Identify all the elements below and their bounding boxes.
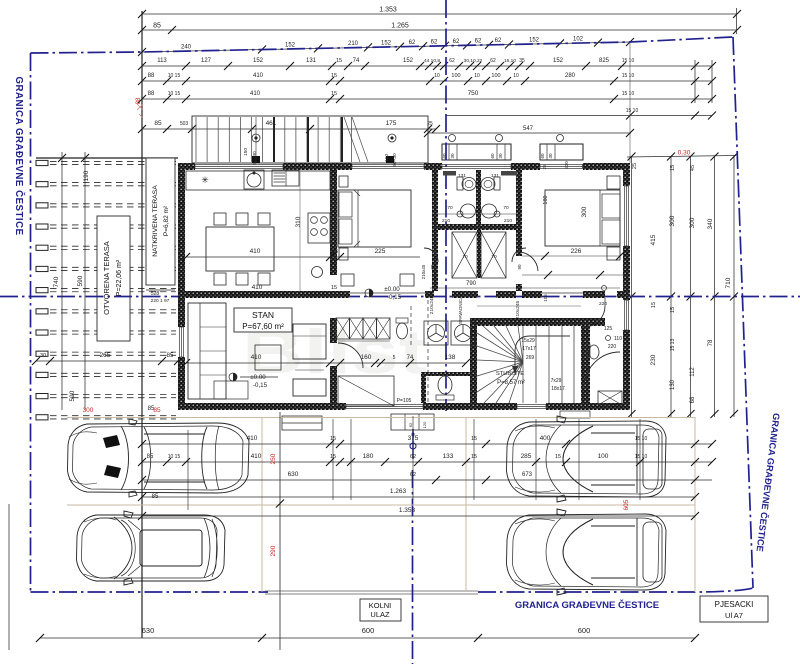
svg-text:62: 62 (409, 40, 416, 46)
svg-text:825: 825 (599, 58, 610, 64)
svg-text:152: 152 (253, 58, 264, 64)
svg-text:16,10: 16,10 (504, 58, 516, 64)
svg-text:0.30: 0.30 (678, 150, 691, 157)
svg-text:-0,15: -0,15 (387, 294, 402, 301)
svg-text:15 10: 15 10 (622, 91, 635, 97)
svg-text:30: 30 (450, 153, 455, 159)
svg-text:410: 410 (252, 284, 263, 291)
svg-text:410: 410 (250, 248, 261, 255)
svg-text:133: 133 (443, 453, 454, 460)
svg-text:600: 600 (362, 626, 375, 635)
svg-text:160: 160 (361, 354, 372, 361)
svg-text:15: 15 (330, 454, 336, 460)
svg-text:15: 15 (555, 454, 561, 460)
svg-text:100: 100 (491, 73, 500, 79)
svg-text:60: 60 (540, 153, 545, 159)
svg-text:62: 62 (475, 39, 482, 45)
svg-text:15 13: 15 13 (670, 339, 676, 352)
svg-text:P=22,06 m²: P=22,06 m² (116, 259, 123, 296)
svg-text:600: 600 (578, 626, 591, 635)
svg-text:790: 790 (466, 281, 477, 287)
svg-text:131: 131 (306, 58, 317, 64)
svg-text:70: 70 (462, 254, 468, 260)
svg-text:461: 461 (266, 120, 277, 127)
svg-text:85: 85 (153, 407, 161, 414)
svg-text:285: 285 (521, 453, 532, 460)
svg-text:269: 269 (526, 355, 535, 361)
svg-text:226: 226 (571, 248, 582, 255)
svg-text:590: 590 (77, 275, 84, 286)
svg-text:220: 220 (599, 301, 607, 307)
svg-text:±0.00: ±0.00 (250, 374, 266, 381)
svg-text:105: 105 (543, 294, 548, 302)
svg-text:62: 62 (410, 454, 416, 460)
svg-text:300: 300 (83, 407, 94, 414)
svg-text:25: 25 (542, 164, 547, 170)
svg-text:PJESACKI: PJESACKI (715, 600, 754, 609)
svg-text:35: 35 (519, 58, 525, 64)
svg-text:110: 110 (594, 293, 602, 299)
svg-text:74: 74 (407, 355, 414, 361)
svg-text:62: 62 (449, 58, 455, 64)
svg-text:KOLNI: KOLNI (369, 601, 392, 610)
svg-text:62: 62 (453, 39, 460, 45)
svg-text:210x245: 210x245 (429, 295, 435, 314)
svg-text:OTVORENA TERASA: OTVORENA TERASA (102, 241, 111, 315)
svg-text:630: 630 (142, 626, 155, 635)
svg-text:138: 138 (445, 354, 456, 361)
svg-text:ULAZ: ULAZ (370, 610, 390, 619)
svg-text:70: 70 (447, 205, 453, 211)
svg-text:P=67,60 m²: P=67,60 m² (242, 322, 284, 331)
svg-text:110: 110 (614, 336, 622, 342)
svg-text:70: 70 (503, 205, 509, 211)
svg-text:150: 150 (243, 148, 249, 156)
svg-text:740: 740 (53, 276, 60, 287)
svg-text:85: 85 (153, 23, 161, 30)
svg-text:P=105: P=105 (397, 398, 412, 404)
svg-text:131: 131 (491, 173, 499, 179)
svg-text:220 1 97: 220 1 97 (151, 298, 170, 304)
svg-text:10 15: 10 15 (168, 91, 181, 97)
svg-text:10: 10 (474, 73, 480, 79)
svg-text:290: 290 (270, 545, 277, 556)
svg-text:1.353: 1.353 (379, 7, 397, 14)
svg-text:15 10: 15 10 (622, 58, 635, 64)
svg-text:15: 15 (670, 307, 676, 313)
svg-text:230: 230 (650, 354, 657, 365)
svg-text:85: 85 (148, 406, 155, 412)
svg-text:68: 68 (690, 396, 696, 403)
svg-text:152: 152 (285, 42, 296, 48)
svg-text:410: 410 (253, 73, 264, 79)
svg-text:152: 152 (403, 58, 414, 64)
svg-text:GRANICA GRAĐEVNE ČESTICE: GRANICA GRAĐEVNE ČESTICE (515, 599, 659, 611)
svg-text:210: 210 (348, 41, 359, 47)
svg-text:P=8,57 m²: P=8,57 m² (497, 380, 525, 386)
svg-text:90+30: 90+30 (392, 153, 398, 167)
svg-text:62: 62 (408, 422, 413, 427)
svg-text:340: 340 (707, 218, 714, 229)
svg-text:62: 62 (490, 58, 496, 64)
svg-text:88: 88 (148, 73, 155, 79)
svg-text:88: 88 (136, 97, 142, 104)
svg-text:630: 630 (288, 471, 299, 478)
svg-text:210x245: 210x245 (515, 300, 521, 319)
svg-text:30: 30 (40, 353, 46, 359)
svg-text:220: 220 (564, 161, 569, 169)
svg-text:85: 85 (154, 120, 162, 127)
svg-text:15: 15 (332, 249, 338, 255)
svg-text:74: 74 (353, 58, 360, 64)
svg-text:SPAVAONICA: SPAVAONICA (458, 296, 463, 324)
svg-text:410: 410 (251, 354, 262, 361)
svg-text:15: 15 (331, 73, 337, 79)
svg-text:10: 10 (513, 73, 519, 79)
svg-text:5: 5 (393, 355, 396, 361)
svg-text:100: 100 (598, 453, 609, 460)
svg-text:15 10: 15 10 (622, 73, 635, 79)
svg-text:112: 112 (690, 367, 696, 377)
svg-text:102: 102 (573, 37, 584, 43)
svg-text:78: 78 (708, 339, 714, 346)
svg-text:25: 25 (581, 163, 586, 169)
svg-text:1.263: 1.263 (390, 488, 407, 495)
svg-text:Ul A7: Ul A7 (725, 611, 743, 620)
svg-text:62: 62 (495, 38, 502, 44)
svg-text:160: 160 (384, 154, 390, 162)
svg-text:90: 90 (517, 264, 522, 270)
svg-text:300: 300 (669, 215, 676, 226)
svg-text:210: 210 (442, 218, 450, 224)
svg-text:44 10,8: 44 10,8 (424, 58, 440, 64)
svg-text:673: 673 (522, 472, 533, 478)
svg-text:605: 605 (623, 499, 630, 510)
svg-text:15: 15 (330, 436, 336, 442)
svg-text:1.265: 1.265 (391, 23, 409, 30)
svg-text:180: 180 (363, 453, 374, 460)
svg-text:120: 120 (422, 421, 427, 428)
svg-text:62: 62 (410, 472, 416, 478)
svg-text:415: 415 (650, 234, 657, 245)
svg-text:10 15: 10 15 (168, 454, 181, 460)
svg-text:-0,15: -0,15 (253, 382, 268, 389)
svg-text:17x17: 17x17 (522, 346, 536, 352)
svg-text:130: 130 (670, 379, 676, 390)
svg-text:90+30: 90+30 (252, 151, 258, 165)
svg-text:15: 15 (471, 436, 477, 442)
svg-text:70: 70 (491, 254, 497, 260)
svg-text:NATKRIVENA TERASA: NATKRIVENA TERASA (152, 185, 159, 257)
svg-text:15: 15 (331, 285, 337, 291)
svg-text:152: 152 (529, 37, 540, 43)
svg-text:190: 190 (83, 170, 90, 181)
svg-text:310: 310 (295, 216, 302, 227)
svg-text:152: 152 (381, 41, 392, 47)
svg-text:280: 280 (565, 73, 576, 79)
svg-text:STUBIŠTE: STUBIŠTE (496, 370, 524, 377)
svg-text:25: 25 (632, 163, 638, 169)
svg-text:85: 85 (152, 494, 159, 500)
svg-text:15: 15 (471, 454, 477, 460)
svg-text:100: 100 (451, 73, 460, 79)
svg-text:10 15: 10 15 (168, 73, 181, 79)
svg-text:88: 88 (148, 91, 155, 97)
svg-text:113: 113 (157, 58, 167, 64)
svg-text:410: 410 (250, 91, 261, 97)
svg-text:30: 30 (548, 153, 553, 159)
svg-text:210x45: 210x45 (421, 264, 426, 279)
svg-text:15x29: 15x29 (521, 338, 535, 344)
svg-text:18x17: 18x17 (551, 386, 565, 392)
svg-text:30,10,22: 30,10,22 (464, 58, 483, 64)
svg-text:152: 152 (553, 58, 564, 64)
svg-text:265: 265 (100, 352, 111, 359)
svg-text:225: 225 (375, 248, 386, 255)
svg-text:175: 175 (386, 120, 397, 127)
svg-text:STAN: STAN (252, 310, 274, 320)
svg-text:10: 10 (434, 73, 440, 79)
svg-text:131: 131 (458, 173, 466, 179)
svg-text:300: 300 (581, 206, 588, 217)
svg-text:60: 60 (490, 153, 495, 159)
svg-text:✳: ✳ (201, 175, 209, 185)
svg-text:180: 180 (543, 195, 549, 204)
svg-text:1.353: 1.353 (399, 507, 416, 514)
svg-text:15: 15 (670, 165, 676, 171)
svg-text:590: 590 (69, 390, 76, 401)
svg-text:547: 547 (523, 126, 534, 132)
svg-text:62: 62 (431, 40, 438, 46)
svg-text:90: 90 (430, 264, 435, 270)
svg-text:220: 220 (608, 344, 617, 350)
svg-text:127: 127 (201, 58, 212, 64)
svg-text:210: 210 (504, 218, 512, 224)
svg-text:240: 240 (181, 45, 192, 51)
svg-text:±0.00: ±0.00 (384, 286, 400, 293)
svg-text:750: 750 (468, 90, 479, 97)
svg-text:P=6,82 m²: P=6,82 m² (163, 205, 170, 236)
svg-text:7x29: 7x29 (551, 378, 562, 384)
svg-text:15: 15 (331, 91, 337, 97)
svg-text:15: 15 (651, 302, 657, 308)
svg-text:85: 85 (167, 353, 174, 359)
svg-text:125: 125 (604, 326, 613, 332)
svg-text:710: 710 (725, 277, 732, 288)
svg-text:503: 503 (180, 121, 189, 127)
svg-text:15 10: 15 10 (626, 108, 639, 114)
svg-text:375: 375 (408, 435, 419, 442)
svg-text:GRANICA GRAĐEVNE ČESTICE: GRANICA GRAĐEVNE ČESTICE (13, 76, 25, 235)
svg-text:30: 30 (498, 153, 503, 159)
svg-text:300: 300 (689, 217, 696, 228)
svg-text:410: 410 (251, 453, 262, 460)
svg-text:45: 45 (690, 165, 696, 171)
svg-text:250: 250 (270, 453, 277, 464)
svg-text:15: 15 (336, 58, 342, 64)
